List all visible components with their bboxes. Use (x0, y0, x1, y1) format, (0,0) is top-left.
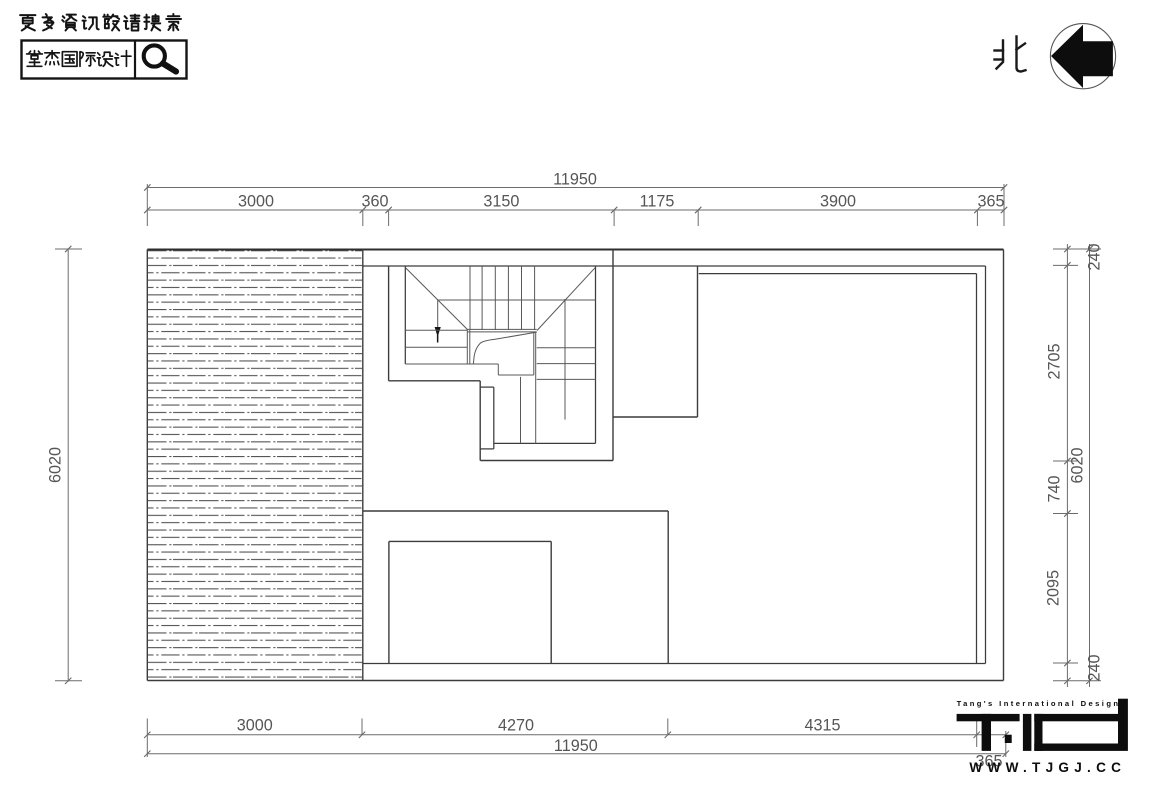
svg-text:3900: 3900 (820, 193, 856, 211)
svg-text:WWW.TJGJ.CC: WWW.TJGJ.CC (969, 760, 1121, 775)
svg-text:1175: 1175 (640, 193, 675, 211)
svg-text:6020: 6020 (1069, 447, 1087, 483)
svg-text:740: 740 (1046, 475, 1064, 502)
svg-text:240: 240 (1086, 243, 1104, 270)
svg-text:3150: 3150 (483, 193, 519, 211)
svg-text:2705: 2705 (1046, 343, 1064, 379)
svg-text:2095: 2095 (1045, 570, 1063, 606)
svg-text:365: 365 (977, 193, 1004, 211)
svg-text:11950: 11950 (553, 171, 597, 189)
svg-text:6020: 6020 (47, 447, 65, 483)
svg-text:4315: 4315 (804, 717, 840, 735)
svg-text:4270: 4270 (498, 717, 534, 735)
svg-text:11950: 11950 (554, 737, 598, 755)
svg-text:240: 240 (1086, 654, 1104, 681)
svg-text:Tang's International Design: Tang's International Design (957, 699, 1119, 708)
svg-text:3000: 3000 (238, 193, 274, 211)
svg-text:3000: 3000 (237, 717, 273, 735)
svg-text:360: 360 (361, 193, 388, 211)
